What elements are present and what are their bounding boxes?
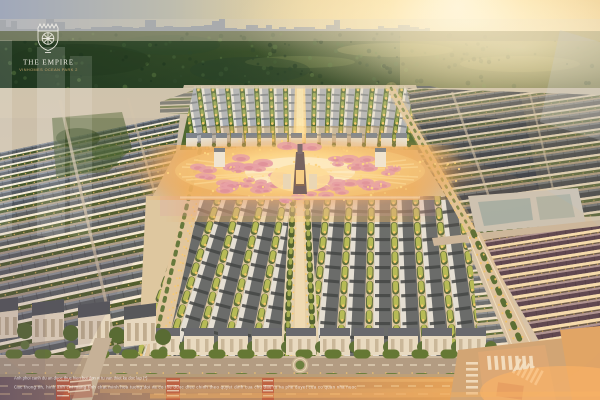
svg-text:Anh phoi canh du an duoc thuc: Anh phoi canh du an duoc thuc hien boi d… (14, 376, 148, 381)
svg-text:THE EMPIRE: THE EMPIRE (23, 59, 74, 67)
svg-text:VINHOMES OCEAN PARK 2: VINHOMES OCEAN PARK 2 (19, 68, 78, 72)
svg-text:Cac thong tin, hinh anh chi ma: Cac thong tin, hinh anh chi mang tinh ch… (14, 385, 357, 390)
